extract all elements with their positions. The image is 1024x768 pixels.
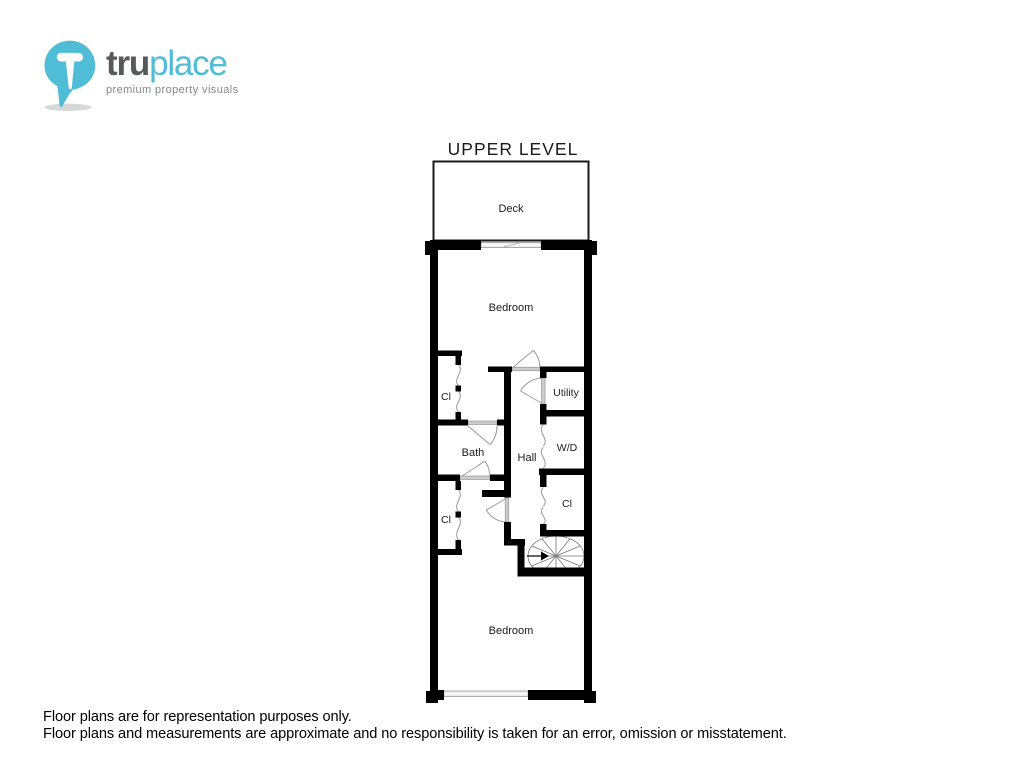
door-panels xyxy=(460,367,545,522)
room-label-bath: Bath xyxy=(462,447,485,459)
slider-door xyxy=(481,242,541,247)
room-label-washer-dryer: W/D xyxy=(557,442,578,454)
floor-plan-svg: UPPER LEVEL xyxy=(420,138,604,710)
brand-primary: tru xyxy=(106,44,149,83)
room-label-bedroom-bottom: Bedroom xyxy=(489,625,534,637)
pin-shadow xyxy=(45,104,92,111)
disclaimer-line-2: Floor plans and measurements are approxi… xyxy=(43,726,787,743)
room-label-deck: Deck xyxy=(498,203,524,215)
truplace-logo: truplace premium property visuals xyxy=(40,40,238,112)
room-label-closet-right: Cl xyxy=(562,498,572,510)
room-label-hall: Hall xyxy=(518,452,537,464)
logo-text: truplace premium property visuals xyxy=(106,40,238,96)
room-label-bedroom-top: Bedroom xyxy=(489,302,534,314)
stair-direction-arrow xyxy=(527,552,549,561)
room-label-closet-upper-left: Cl xyxy=(441,391,451,403)
room-label-utility: Utility xyxy=(553,387,579,399)
floor-plan-page: { "logo": { "icon_letter": "T", "brand_p… xyxy=(0,0,1024,768)
brand-secondary: place xyxy=(149,44,227,83)
disclaimer-line-1: Floor plans are for representation purpo… xyxy=(43,709,787,726)
door-swings xyxy=(457,350,546,540)
window xyxy=(444,691,528,696)
brand-name: truplace xyxy=(106,47,238,81)
deck-outline xyxy=(434,162,589,241)
truplace-pin-icon xyxy=(40,40,98,112)
brand-tagline: premium property visuals xyxy=(106,84,238,96)
disclaimer: Floor plans are for representation purpo… xyxy=(43,709,787,744)
room-label-closet-lower-left: Cl xyxy=(441,514,451,526)
plan-title: UPPER LEVEL xyxy=(448,139,579,159)
